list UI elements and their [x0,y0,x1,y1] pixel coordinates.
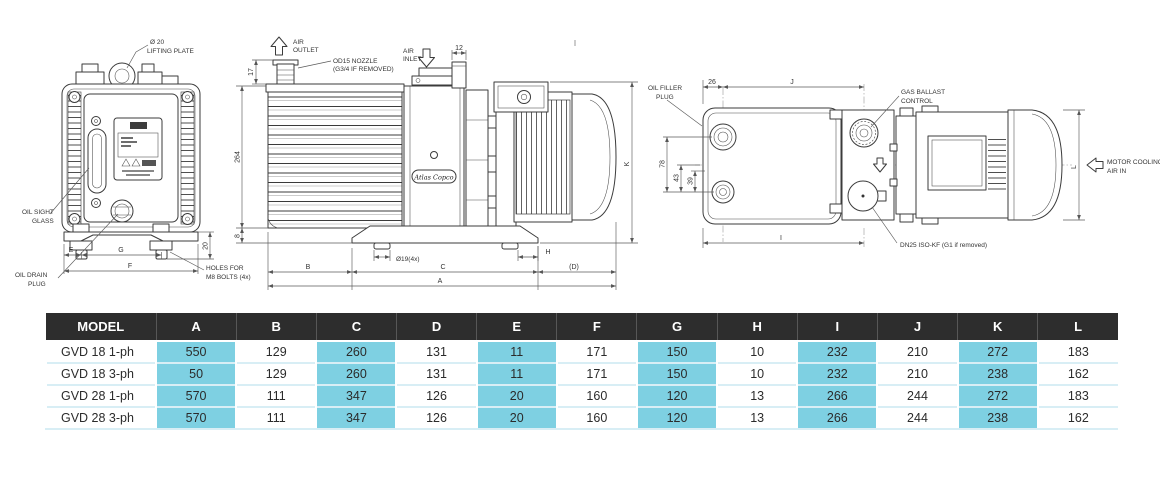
oil-drain-plug-label-2: PLUG [28,281,46,288]
dim-17-label: 17 [248,68,255,76]
value-cell-e: 11 [477,363,557,385]
gas-ballast-label-2: CONTROL [901,98,933,105]
value-cell-j: 210 [877,363,957,385]
exhaust-pipe [452,62,466,88]
technical-drawings: E G F 20 Ø 20 LIFTING PLATE OIL SIGHT GL… [0,0,1160,310]
table-header: MODELABCDEFGHIJKL [46,313,1118,341]
value-cell-h: 10 [717,341,797,363]
air-inlet-label-1: AIR [403,48,414,55]
value-cell-l: 162 [1038,363,1118,385]
dim-12: 12 [452,45,466,60]
value-cell-i: 232 [797,363,877,385]
value-cell-a: 50 [156,363,236,385]
nozzle-leader [298,61,331,68]
pump-top-cap [266,84,404,92]
value-cell-c: 347 [316,385,396,407]
value-cell-a: 570 [156,407,236,429]
value-cell-a: 550 [156,341,236,363]
gas-ballast-label-1: GAS BALLAST [901,89,945,96]
dim-k-label: K [624,161,631,166]
motor-top [916,106,1062,224]
nozzle-label-2: (G3/4 IF REMOVED) [333,66,394,73]
model-cell: GVD 18 3-ph [46,363,156,385]
value-cell-h: 10 [717,363,797,385]
dim-f-label: F [128,263,132,270]
brand-logo: Atlas Copco [413,174,453,182]
dim-h-label: H [545,249,550,256]
table-row: GVD 28 3-ph57011134712620160120132662442… [46,407,1118,429]
holes-label-2: M8 BOLTS (4x) [206,274,251,281]
pump-fins [268,92,402,228]
value-cell-c: 260 [316,363,396,385]
value-cell-g: 120 [637,407,717,429]
oil-drain-plug [111,200,133,222]
value-cell-h: 13 [717,407,797,429]
column-header-i: I [797,313,877,341]
value-cell-c: 260 [316,341,396,363]
dim-43-label: 43 [674,174,681,182]
model-cell: GVD 18 1-ph [46,341,156,363]
value-cell-i: 266 [797,385,877,407]
gas-ballast-knob [850,119,878,147]
column-header-c: C [316,313,396,341]
oil-filler-label-2: PLUG [656,94,674,101]
dim-c-label: C [440,264,445,271]
column-header-e: E [477,313,557,341]
column-header-k: K [958,313,1038,341]
value-cell-k: 238 [958,363,1038,385]
dim-b-label: B [306,264,311,271]
value-cell-b: 111 [236,385,316,407]
left-rib-strip [68,92,81,224]
dim-j-label: J [790,79,794,86]
table-row: GVD 28 1-ph57011134712620160120132662442… [46,385,1118,407]
foot-hole-label: Ø19(4x) [396,256,419,263]
dim-d-label: (D) [569,264,579,271]
nozzle-label-1: OD15 NOZZLE [333,58,378,65]
value-cell-a: 570 [156,385,236,407]
value-cell-g: 120 [637,385,717,407]
column-header-model: MODEL [46,313,156,341]
dim-foot-height-label: 20 [203,242,210,250]
motor-cooling-label-2: AIR IN [1107,168,1126,175]
value-cell-l: 183 [1038,341,1118,363]
column-header-d: D [396,313,476,341]
air-outlet-label-1: AIR [293,39,304,46]
value-cell-f: 160 [557,385,637,407]
value-cell-i: 266 [797,407,877,429]
value-cell-f: 171 [557,363,637,385]
holes-label-1: HOLES FOR [206,265,244,272]
motor-cooling-label-1: MOTOR COOLING [1107,159,1160,166]
value-cell-e: 11 [477,341,557,363]
column-header-h: H [717,313,797,341]
dim-a-label: A [438,278,443,285]
table-row: GVD 18 1-ph55012926013111171150102322102… [46,341,1118,363]
value-cell-b: 129 [236,341,316,363]
value-cell-j: 244 [877,407,957,429]
motor-cooling-arrow-icon [1087,158,1103,172]
dim-39-label: 39 [688,177,695,185]
value-cell-h: 13 [717,385,797,407]
value-cell-i: 232 [797,341,877,363]
value-cell-b: 129 [236,363,316,385]
value-cell-f: 160 [557,407,637,429]
table-header-row: MODELABCDEFGHIJKL [46,313,1118,341]
oil-sight-glass-label-1: OIL SIGHT [22,209,54,216]
dim-8-label: 8 [235,234,242,238]
column-header-a: A [156,313,236,341]
column-header-j: J [877,313,957,341]
value-cell-j: 244 [877,385,957,407]
value-cell-k: 272 [958,341,1038,363]
dimension-table: MODELABCDEFGHIJKL GVD 18 1-ph55012926013… [45,313,1118,430]
lifting-plate-label: LIFTING PLATE [147,48,194,55]
air-outlet-nozzle [273,60,298,86]
value-cell-c: 347 [316,407,396,429]
air-outlet-arrow-icon [271,37,287,55]
base-plate [352,226,538,249]
value-cell-g: 150 [637,341,717,363]
table-body: GVD 18 1-ph55012926013111171150102322102… [46,341,1118,429]
value-cell-d: 131 [396,363,476,385]
value-cell-d: 126 [396,407,476,429]
dim-26-label: 26 [708,79,716,86]
dim-i-label: I [780,235,782,242]
value-cell-g: 150 [637,363,717,385]
column-header-l: L [1038,313,1118,341]
column-header-f: F [557,313,637,341]
terminal-box [494,82,548,112]
value-cell-k: 238 [958,407,1038,429]
datasheet-page: E G F 20 Ø 20 LIFTING PLATE OIL SIGHT GL… [0,0,1160,480]
value-cell-e: 20 [477,407,557,429]
column-header-b: B [236,313,316,341]
value-cell-j: 210 [877,341,957,363]
right-rib-strip [181,92,194,224]
lifting-hole-label: Ø 20 [150,39,164,46]
value-cell-e: 20 [477,385,557,407]
dim-78-label: 78 [660,160,667,168]
value-cell-b: 111 [236,407,316,429]
dim-264-label: 264 [235,151,242,163]
table-row: GVD 18 3-ph50129260131111711501023221023… [46,363,1118,385]
value-cell-l: 162 [1038,407,1118,429]
dim-12-label: 12 [455,45,463,52]
air-outlet-label-2: OUTLET [293,47,319,54]
oil-sight-glass-label-2: GLASS [32,218,54,225]
value-cell-d: 126 [396,385,476,407]
value-cell-d: 131 [396,341,476,363]
motor-fins-top [988,136,1006,193]
dn25-label: DN25 ISO-KF (G1 if removed) [900,242,987,249]
column-header-g: G [637,313,717,341]
model-cell: GVD 28 3-ph [46,407,156,429]
oil-drain-plug-label-1: OIL DRAIN [15,272,48,279]
value-cell-f: 171 [557,341,637,363]
air-inlet-label-2: INLET [403,56,421,63]
dim-g-label: G [118,247,123,254]
model-cell: GVD 28 1-ph [46,385,156,407]
value-cell-l: 183 [1038,385,1118,407]
pump-head: Atlas Copco [404,86,464,236]
side-view-drawing: AIR OUTLET OD15 NOZZLE (G3/4 IF REMOVED)… [235,37,639,290]
value-cell-k: 272 [958,385,1038,407]
oil-filler-label-1: OIL FILLER [648,85,682,92]
dim-l-label: L [1071,165,1078,169]
front-view-drawing: E G F 20 Ø 20 LIFTING PLATE OIL SIGHT GL… [15,39,251,288]
top-view-drawing: 26 J 78 43 39 I L OIL FILLER PLUG [648,79,1160,249]
dim-e-label: E [69,247,74,254]
